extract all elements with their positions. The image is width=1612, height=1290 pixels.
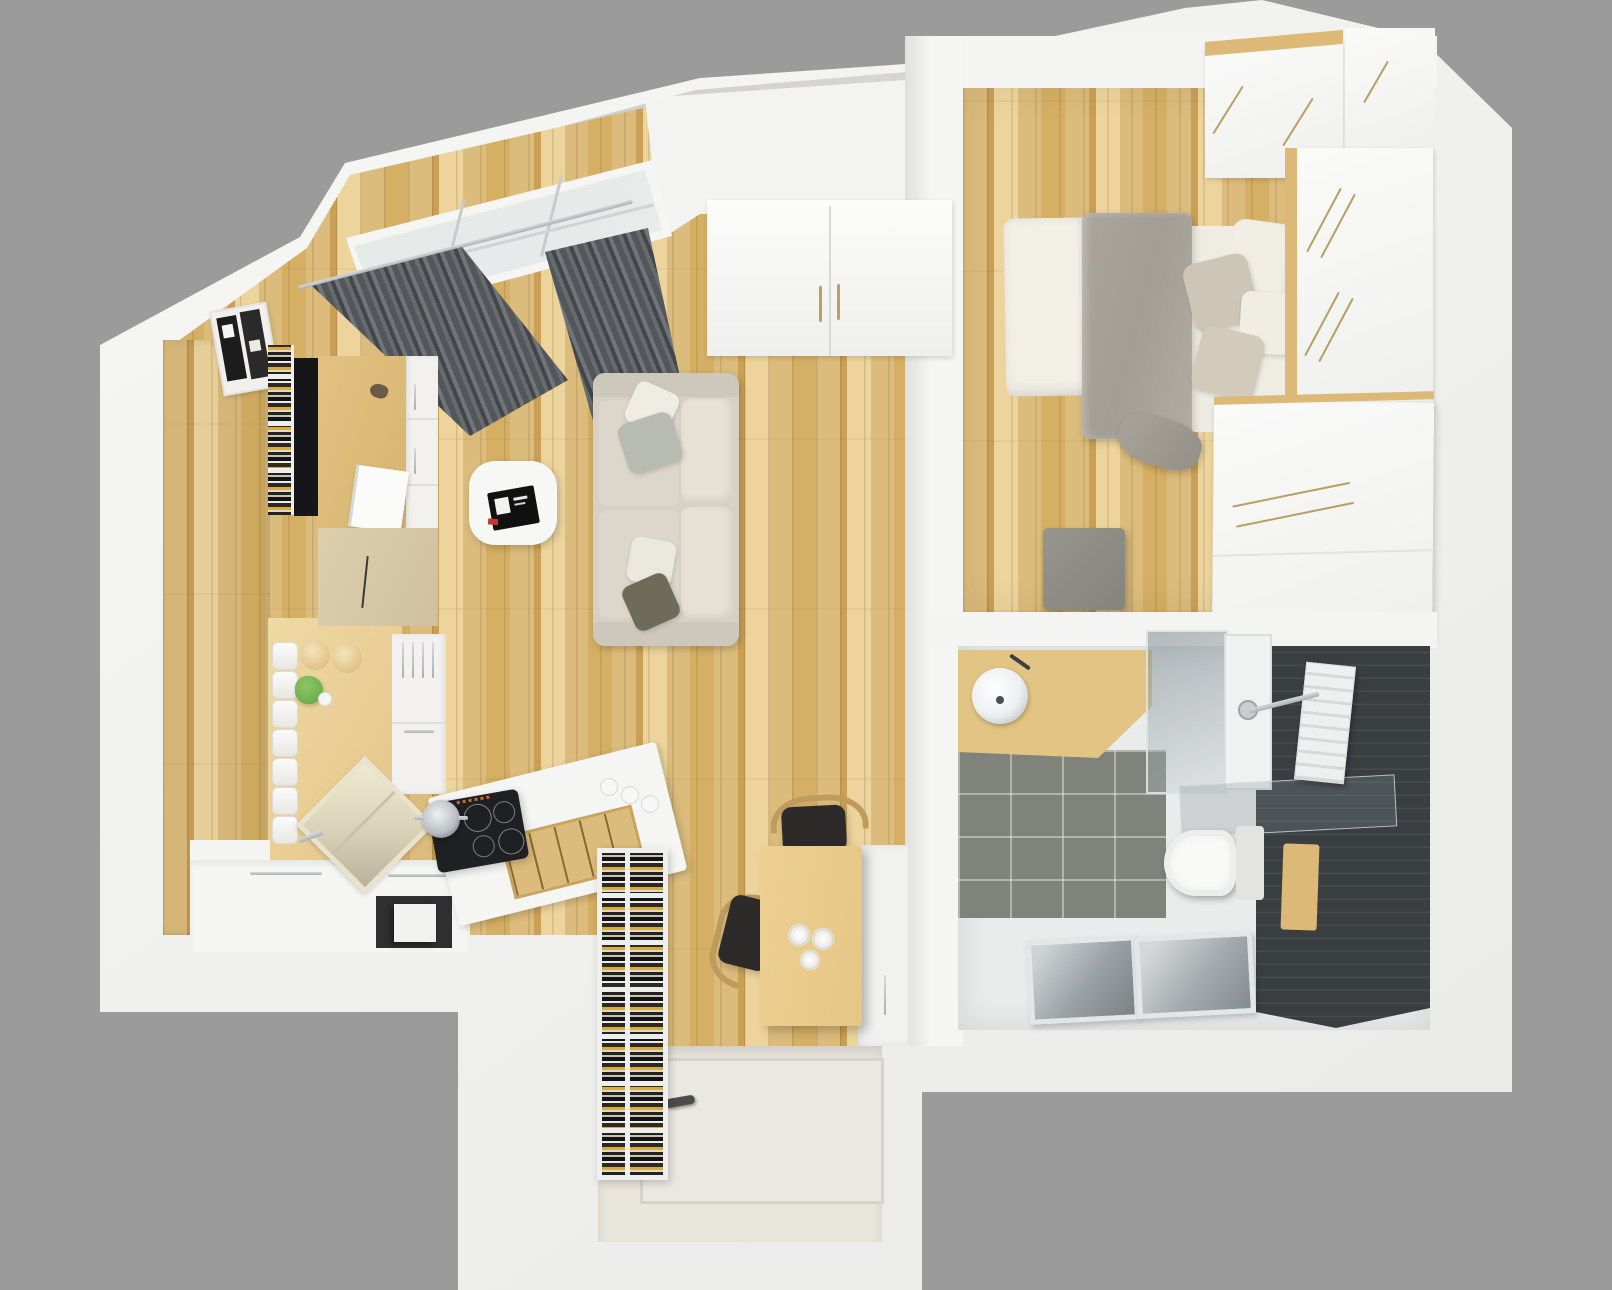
bathroom-grey-tiles (958, 750, 1166, 918)
dining-table (760, 846, 862, 1026)
wall-hung-toilet (1164, 826, 1264, 900)
hall-wardrobe (707, 200, 952, 356)
white-jar (641, 795, 659, 813)
bedroom-cabinet-bottom (1212, 401, 1434, 641)
wardrobe-wood-side (1285, 148, 1297, 410)
red-bookmark (488, 518, 498, 525)
bedroom-wardrobe-top-right (1345, 28, 1435, 152)
pot-handle (414, 816, 424, 820)
wardrobe-handle (1212, 86, 1243, 135)
shower-glass-panel (1146, 630, 1228, 794)
burner-ring (471, 833, 496, 858)
wardrobe-handle (1306, 188, 1342, 253)
sink-divider (331, 791, 395, 855)
divider-wall (905, 36, 963, 1046)
shelf-canister (272, 729, 298, 757)
magazine-cover-art (249, 339, 262, 352)
shelf-canister (272, 642, 298, 670)
niche-white-box (394, 904, 436, 942)
toilet-bowl (1164, 830, 1236, 896)
unit-handle (402, 642, 404, 678)
burner-ring (496, 826, 526, 856)
plant-pot (318, 692, 332, 706)
drawer-handle (414, 384, 416, 410)
desk-cable (361, 556, 368, 608)
plate (812, 928, 834, 950)
white-laptop (348, 465, 409, 534)
magazine-title-line (513, 495, 527, 500)
wood-jar (332, 643, 362, 673)
island-niche (376, 896, 452, 948)
bed-duvet (1082, 213, 1192, 439)
wardrobe-handle (1320, 194, 1356, 259)
wood-jar (300, 640, 330, 670)
magazine-cover-art (494, 497, 511, 515)
sofa-back-cushion (681, 507, 733, 619)
sofa-armrest-bottom (593, 622, 739, 646)
wardrobe-handle (837, 284, 840, 320)
drawer-handle-bar (388, 874, 446, 877)
unit-door-seam (392, 722, 446, 724)
unit-handle (432, 642, 434, 678)
pot-handle (458, 816, 468, 820)
hall-side-cabinet (858, 845, 908, 1046)
cabinet-handle (884, 975, 886, 1015)
tall-white-unit (392, 634, 446, 794)
magazine-black (487, 485, 540, 531)
wardrobe-handle (819, 286, 822, 322)
drawer-handle-bar (250, 872, 322, 875)
wardrobe-handle (1363, 61, 1389, 104)
entry-door (640, 1058, 884, 1204)
drawer-seam (406, 418, 438, 420)
plate (800, 950, 820, 970)
shelf-canister (272, 700, 298, 728)
dark-niche (294, 358, 320, 516)
folding-desk-panel (318, 528, 438, 626)
plate (788, 924, 810, 946)
wall-book-column (268, 345, 294, 515)
sofa-back-cushion (681, 399, 733, 503)
sink-drain (996, 696, 1004, 704)
wardrobe-door-seam (829, 206, 831, 356)
flush-wood-panel (1281, 843, 1320, 930)
grey-ottoman (1043, 528, 1125, 610)
bed-sheet-folded (1003, 217, 1092, 396)
shower-tray (1224, 634, 1272, 790)
drawer-unit-white (406, 356, 438, 546)
burner-ring (491, 799, 516, 824)
vessel-sink (972, 668, 1028, 724)
magazine-cover-art (222, 324, 235, 339)
cabinet-seam (1213, 549, 1433, 557)
shelf-canister (272, 671, 298, 699)
magazine-title-line (514, 502, 525, 506)
wardrobe-handle (1318, 298, 1354, 363)
white-jar (600, 778, 618, 796)
unit-handle (422, 642, 424, 678)
shelf-canister (272, 816, 298, 844)
cabinet-handle (1232, 482, 1350, 508)
shelf-canister (272, 758, 298, 786)
drawer-handle (414, 448, 416, 474)
toilet-tank (1236, 826, 1264, 900)
floor-hatch (1134, 931, 1256, 1019)
door-handle (664, 1094, 695, 1108)
unit-handle (412, 642, 414, 678)
apartment-floorplan-render (0, 0, 1612, 1290)
shelf-canister (272, 787, 298, 815)
wardrobe-handle (1304, 292, 1340, 357)
steel-pot (422, 800, 460, 838)
unit-door-handle (404, 730, 434, 733)
white-jar (621, 786, 639, 804)
coffee-table (469, 461, 557, 545)
tall-bookcase (597, 848, 668, 1180)
bedroom-wardrobe-right (1297, 148, 1433, 410)
floor-hatch (1026, 935, 1140, 1025)
drawer-seam (406, 484, 438, 486)
cabinet-handle (1236, 502, 1354, 528)
wardrobe-handle (1282, 98, 1313, 147)
